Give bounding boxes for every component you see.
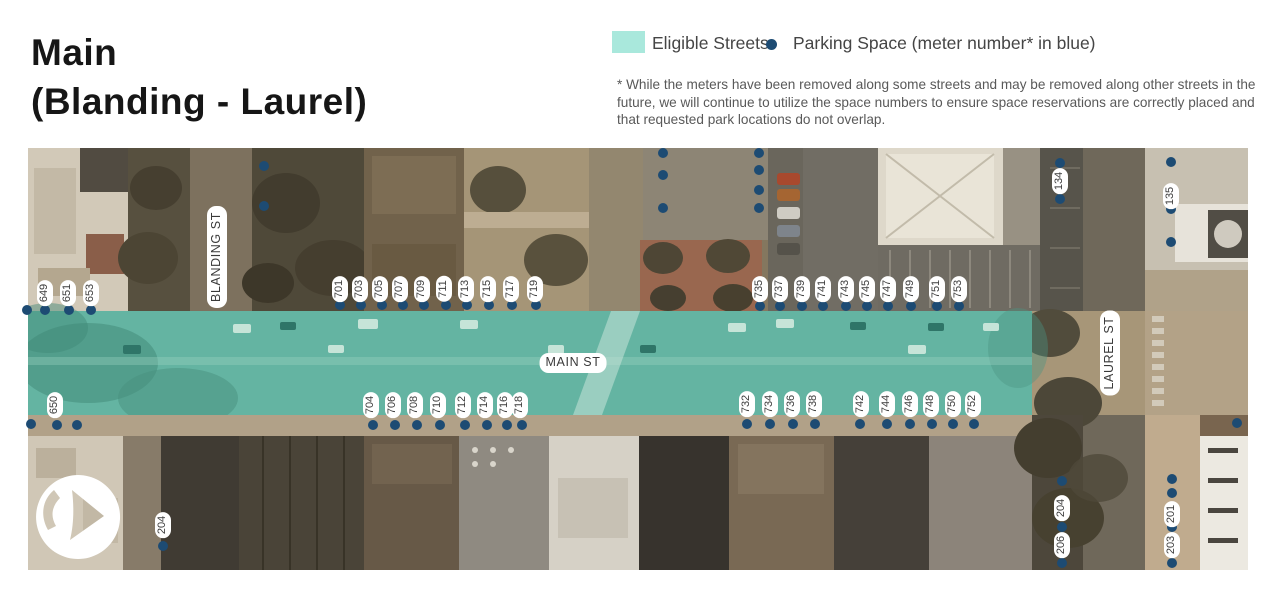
meter-disclaimer-text: * While the meters have been removed alo… xyxy=(617,76,1257,129)
legend-eligible-label: Eligible Streets xyxy=(652,33,769,54)
parking-space-legend-icon xyxy=(766,39,777,50)
legend-parking-label: Parking Space (meter number* in blue) xyxy=(793,33,1096,54)
aerial-photo xyxy=(28,148,1248,570)
map-image xyxy=(28,148,1248,570)
page-title-line2: (Blanding - Laurel) xyxy=(31,77,367,126)
page: Main (Blanding - Laurel) Eligible Street… xyxy=(0,0,1275,600)
page-title: Main (Blanding - Laurel) xyxy=(31,28,367,126)
page-title-line1: Main xyxy=(31,28,367,77)
legend-eligible-swatch xyxy=(612,31,645,53)
